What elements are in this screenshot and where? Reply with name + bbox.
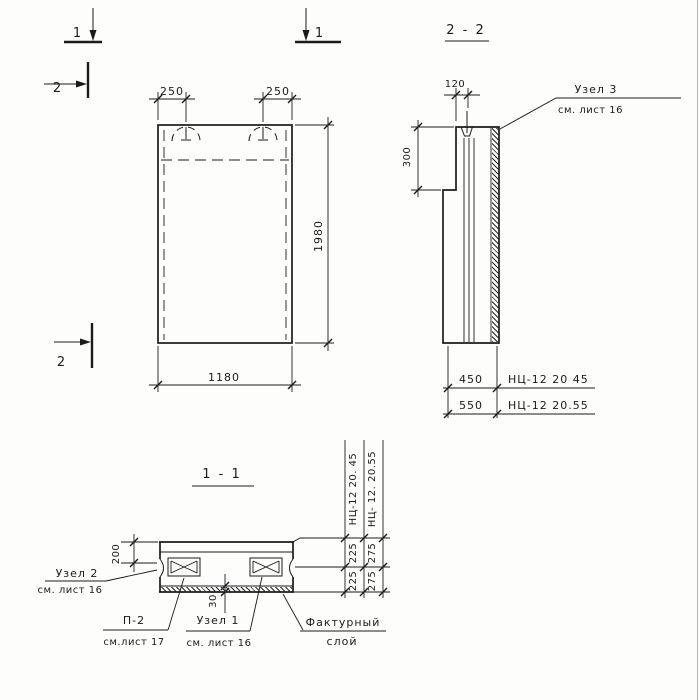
dim-250-right: 250 [254,85,301,122]
section-1-1: 1 - 1 [37,440,390,649]
node-title: Узел 2 [56,567,99,580]
section-marker-2-bottom: 2 [54,323,92,370]
facing-label-line2: слой [327,635,358,648]
dim-value: 1180 [208,371,240,384]
dim-value: 1980 [312,220,325,252]
dim-value: 275 [367,543,378,564]
thickness-dim-table: НЦ-12 20. 45 НЦ- 12. 20.55 225 225 275 2… [293,440,390,598]
callout-facing-layer: Фактурный слой [283,594,386,648]
down-arrow-icon [90,30,97,41]
marker-2-top-label: 2 [53,81,61,96]
section-marker-1-left: 1 [64,8,102,42]
section-2-2: 2 - 2 120 [402,23,681,418]
right-arrow-icon [76,81,87,88]
p2-ref: см.лист 17 [103,637,164,648]
down-arrow-icon [303,30,310,41]
channel-void-right [250,558,282,576]
front-view: 250 250 1980 [149,85,334,392]
section-marker-2-top: 2 [44,62,88,98]
dim-value: 200 [111,544,122,565]
dim-value: 275 [367,571,378,592]
dim-120: 120 [444,79,480,121]
node-title: Узел 1 [197,614,240,627]
node-ref: см. лист 16 [186,638,251,649]
panel-mark-45: НЦ-12 20. 45 [348,453,359,526]
right-arrow-icon [80,339,91,346]
dim-200: 200 [111,534,158,572]
section-marker-1-right: 1 [295,8,341,42]
node-ref: см. лист 16 [37,585,102,596]
dim-value: 30 [208,594,219,608]
dim-value: 550 [459,399,483,412]
facing-label-line1: Фактурный [306,616,381,629]
dim-value: 300 [402,147,413,168]
dim-row-550: 550 НЦ-12 20.55 [443,399,595,418]
node-title: Узел 3 [575,83,618,96]
dim-value: 250 [160,85,184,98]
dim-value: 225 [348,543,359,564]
panel-drawing: 1 1 2 2 [0,0,700,700]
facing-layer-hatch-1-1 [161,587,292,592]
dim-1980: 1980 [295,117,334,351]
dim-value: 225 [348,571,359,592]
callout-node-3: Узел 3 см. лист 16 [500,83,681,129]
facing-layer-hatch-2-2 [492,128,499,342]
marker-1-left-label: 1 [73,26,81,41]
panel-outline [158,125,292,343]
callout-node-2: Узел 2 см. лист 16 [37,567,157,596]
sheet-edge-line [697,0,698,700]
dim-value: 120 [445,79,466,90]
channel-void-left [168,558,200,576]
panel-mark: НЦ-12 20 45 [508,373,589,386]
panel-mark-55: НЦ- 12. 20.55 [367,451,378,527]
dim-300: 300 [402,120,454,197]
marker-2-bottom-label: 2 [57,355,65,370]
p2-title: П-2 [123,614,145,627]
node-ref: см. лист 16 [558,105,623,116]
drawing-sheet: 1 1 2 2 [0,0,700,700]
panel-mark: НЦ-12 20.55 [508,399,589,412]
dim-1180: 1180 [149,346,301,392]
dim-value: 450 [459,373,483,386]
marker-1-right-label: 1 [315,26,323,41]
dim-250-left: 250 [149,85,195,122]
section-2-2-title: 2 - 2 [446,23,486,38]
dim-value: 250 [266,85,290,98]
section-1-1-title: 1 - 1 [202,467,242,482]
